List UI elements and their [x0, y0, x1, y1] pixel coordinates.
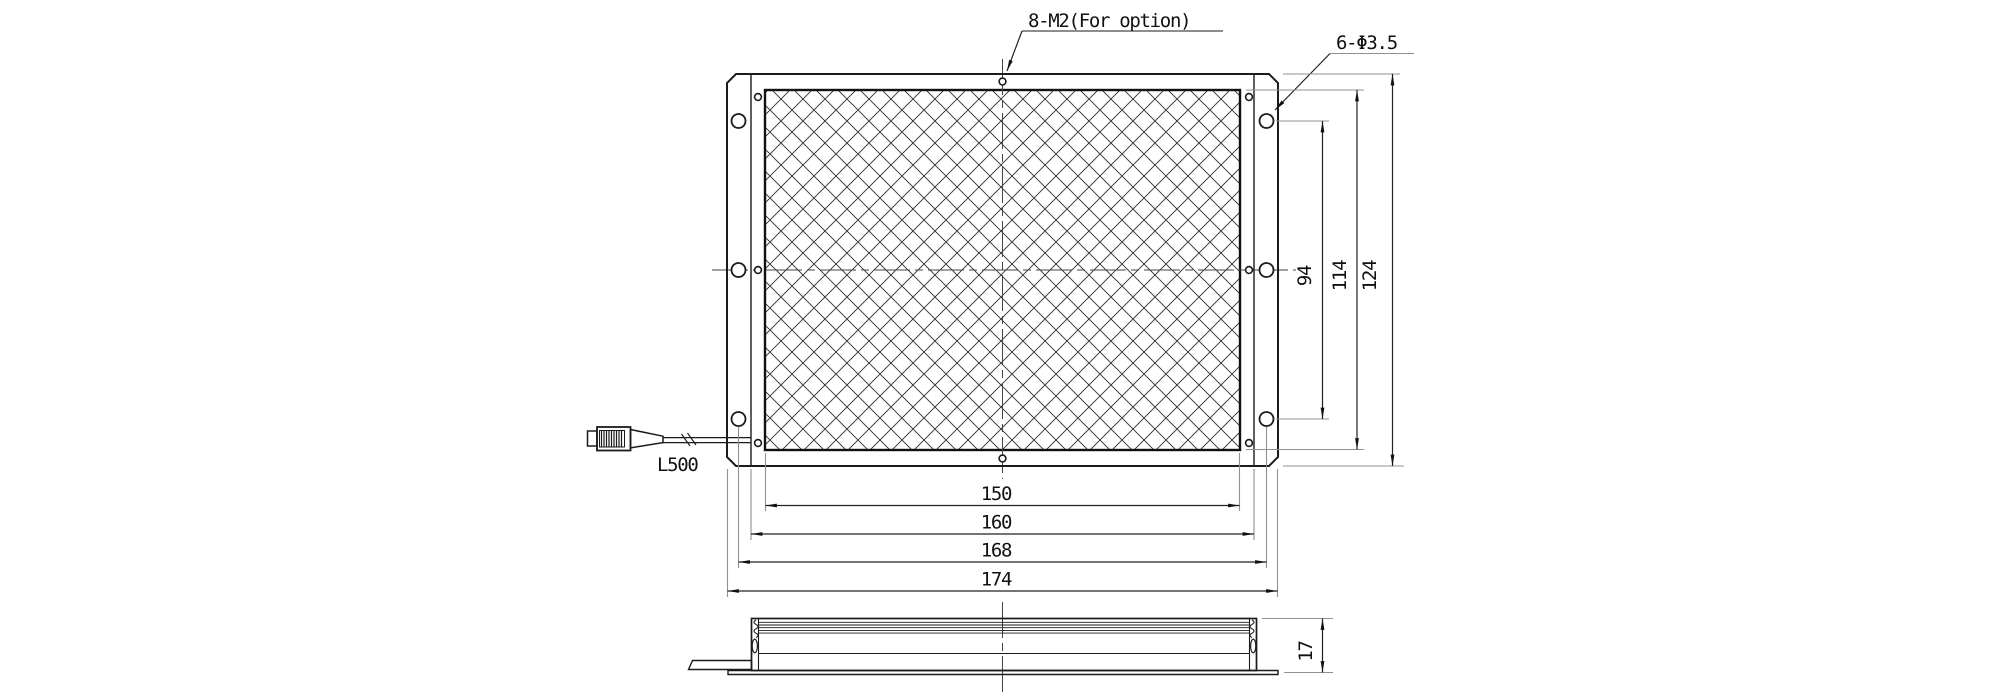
- side-screw-left: [752, 639, 757, 653]
- note-6-phi35-leader: [1275, 54, 1330, 111]
- cable-break-mark: [682, 433, 697, 446]
- connector-crimp-stripes: [602, 431, 622, 447]
- cable-length-label: L500: [657, 454, 698, 476]
- phi35-hole: [732, 412, 746, 426]
- dim-label-17: 17: [1295, 641, 1317, 662]
- connector-boot: [631, 430, 664, 448]
- dim-label-150: 150: [981, 483, 1012, 505]
- dim-label-114: 114: [1329, 260, 1351, 291]
- note-6-phi35: 6-Φ3.5: [1336, 32, 1397, 54]
- m2-hole: [755, 94, 762, 101]
- phi35-hole: [1260, 263, 1274, 277]
- dim-label-168: 168: [981, 540, 1012, 562]
- side-end-lines: [759, 619, 1250, 671]
- side-screw-right: [1251, 639, 1256, 653]
- phi35-hole: [732, 114, 746, 128]
- front-view: [712, 59, 1306, 479]
- m2-hole: [755, 267, 762, 274]
- m2-hole: [999, 455, 1006, 462]
- technical-drawing: L500 8-M2(For option) 6-Φ3.5 150 160 168…: [0, 0, 2000, 700]
- side-body: [752, 619, 1257, 671]
- side-clip-left: [754, 620, 758, 638]
- phi35-hole: [1260, 114, 1274, 128]
- m2-hole: [1246, 94, 1253, 101]
- note-8-m2: 8-M2(For option): [1028, 10, 1190, 32]
- phi35-hole: [1260, 412, 1274, 426]
- drawing-canvas: L500 8-M2(For option) 6-Φ3.5 150 160 168…: [0, 0, 2000, 700]
- connector-tip: [588, 431, 598, 446]
- side-cable-tab: [689, 661, 752, 670]
- cable-lines: [663, 438, 751, 443]
- phi35-hole: [732, 263, 746, 277]
- dim-label-94: 94: [1294, 265, 1316, 286]
- m2-hole: [1246, 440, 1253, 447]
- dim-label-160: 160: [981, 512, 1012, 534]
- m2-hole: [755, 440, 762, 447]
- side-layer-lines: [759, 622, 1250, 633]
- side-view: 17: [689, 602, 1334, 692]
- side-clip-right: [1250, 620, 1254, 638]
- m2-hole: [1246, 267, 1253, 274]
- dim-label-124: 124: [1359, 260, 1381, 291]
- note-8-m2-leader: [1007, 31, 1022, 71]
- m2-hole: [999, 78, 1006, 85]
- dim-label-174: 174: [981, 569, 1012, 591]
